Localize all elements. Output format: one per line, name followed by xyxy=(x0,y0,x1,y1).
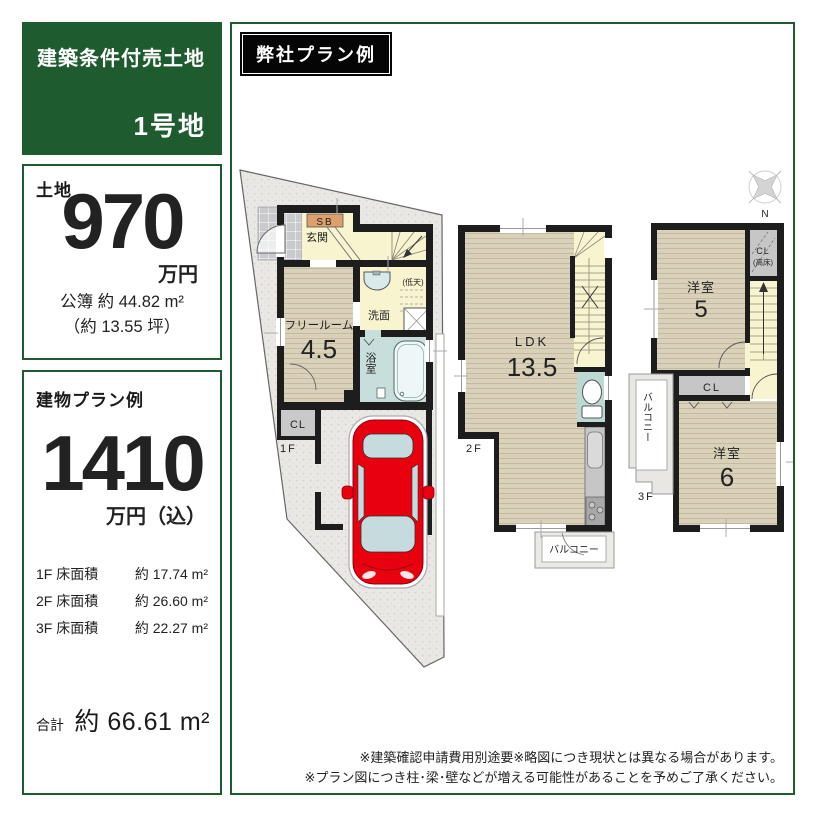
bathtub-icon xyxy=(394,341,427,401)
label-balcony-3f: バルコニー xyxy=(641,392,653,442)
floor-area-value: 約 26.60 m² xyxy=(135,591,208,611)
bath-faucet-icon xyxy=(377,388,385,398)
floorplan-1f: SB 玄関 フリールーム 4.5 洗面 (低天) 浴室 CL 1F xyxy=(240,170,444,667)
land-area-tsubo: （約 13.55 坪） xyxy=(24,313,220,337)
floor-area-row-2f: 2F 床面積 約 26.60 m² xyxy=(36,591,208,611)
total-area-label: 合計 xyxy=(36,715,64,735)
label-floor-2f: 2F xyxy=(466,443,483,455)
label-room6-size: 6 xyxy=(720,462,734,492)
lot-header-banner: 建築条件付売土地 1号地 xyxy=(22,22,222,155)
flyer-page: { "colors":{"brand_green":"#1e5b2e","wal… xyxy=(0,0,814,814)
floor-area-row-1f: 1F 床面積 約 17.74 m² xyxy=(36,564,208,584)
floorplan-drawing: SB 玄関 フリールーム 4.5 洗面 (低天) 浴室 CL 1F xyxy=(232,24,793,793)
lot-number-label: 1号地 xyxy=(134,106,206,143)
toilet-bowl-icon xyxy=(583,380,602,404)
land-area-registered: 公簿 約 44.82 m² xyxy=(24,288,220,312)
floor-area-label: 1F 床面積 xyxy=(36,564,98,584)
company-plan-tag: 弊社プラン例 xyxy=(240,32,392,76)
building-title: 建物プラン例 xyxy=(36,386,144,411)
label-washroom: 洗面 xyxy=(368,309,390,322)
floorplan-3f: 洋室 5 CL (高床) CL 洋室 6 3F バルコニー N xyxy=(629,163,789,533)
land-price: 970 xyxy=(24,182,220,260)
label-closet-3f: CL xyxy=(703,382,721,394)
label-freeroom: フリールーム xyxy=(285,319,354,332)
label-closet-high: CL xyxy=(756,246,770,256)
label-room5-size: 5 xyxy=(694,296,707,323)
toilet-tank-icon xyxy=(582,406,602,418)
floor-area-value: 約 17.74 m² xyxy=(135,564,208,584)
building-plan-panel: 建物プラン例 1410 万円（込） 1F 床面積 約 17.74 m² 2F 床… xyxy=(22,370,222,795)
lot-type-label: 建築条件付売土地 xyxy=(37,42,205,71)
floorplan-panel: SB 玄関 フリールーム 4.5 洗面 (低天) 浴室 CL 1F xyxy=(230,22,795,795)
label-closet-high-note: (高床) xyxy=(753,257,773,267)
compass-north-label: N xyxy=(761,209,768,220)
car-mirror-left xyxy=(342,486,353,499)
car-windshield xyxy=(361,516,415,552)
floorplan-2f: LDK 13.5 2F バルコニー xyxy=(457,224,614,568)
car-side-window-left xyxy=(358,464,364,522)
label-room5: 洋室 xyxy=(687,280,715,295)
label-balcony-2f: バルコニー xyxy=(549,544,599,556)
disclaimer-line-1: ※建築確認申請費用別途要※略図につき現状とは異なる場合があります。 xyxy=(304,748,783,768)
total-area-value: 約 66.61 m² xyxy=(74,702,210,738)
building-price: 1410 xyxy=(24,424,220,502)
label-entrance: 玄関 xyxy=(306,230,328,244)
site-fence xyxy=(436,334,444,616)
label-low-ceiling: (低天) xyxy=(402,277,424,287)
label-shoe-box: SB xyxy=(316,217,333,228)
car-rear-window xyxy=(363,434,413,458)
land-price-unit: 万円 xyxy=(158,258,198,287)
balcony-3f: バルコニー xyxy=(629,374,673,494)
stove-burner xyxy=(597,507,603,513)
kitchen-sink-icon xyxy=(588,432,603,468)
building-price-unit: 万円（込） xyxy=(106,500,206,529)
stove-burner xyxy=(589,502,595,508)
total-area-row: 合計 約 66.61 m² xyxy=(36,702,210,738)
land-price-panel: 土地 970 万円 公簿 約 44.82 m² （約 13.55 坪） xyxy=(22,164,222,360)
label-ldk: LDK xyxy=(515,334,549,349)
compass-star xyxy=(741,163,789,211)
floor-area-row-3f: 3F 床面積 約 22.27 m² xyxy=(36,618,208,638)
label-room6: 洋室 xyxy=(713,446,741,461)
car-mirror-right xyxy=(423,486,434,499)
label-bathroom: 浴室 xyxy=(364,352,377,374)
compass-rose: N xyxy=(741,163,789,220)
car-side-window-right xyxy=(412,464,418,522)
sink-faucet-icon xyxy=(373,271,380,275)
label-closet-1f: CL xyxy=(290,419,306,431)
floor-area-label: 3F 床面積 xyxy=(36,618,98,638)
disclaimer-line-2: ※プラン図につき柱･梁･壁などが増える可能性があることを予めご了承ください。 xyxy=(304,768,783,788)
balcony-2f: バルコニー xyxy=(535,532,614,568)
floor-area-label: 2F 床面積 xyxy=(36,591,98,611)
label-ldk-size: 13.5 xyxy=(507,352,558,382)
car xyxy=(342,416,434,588)
floor-area-value: 約 22.27 m² xyxy=(135,618,208,638)
stove-burner xyxy=(589,514,595,520)
label-floor-1f: 1F xyxy=(280,443,297,455)
label-freeroom-size: 4.5 xyxy=(301,334,337,364)
disclaimer-text: ※建築確認申請費用別途要※略図につき現状とは異なる場合があります。 ※プラン図に… xyxy=(304,748,783,788)
